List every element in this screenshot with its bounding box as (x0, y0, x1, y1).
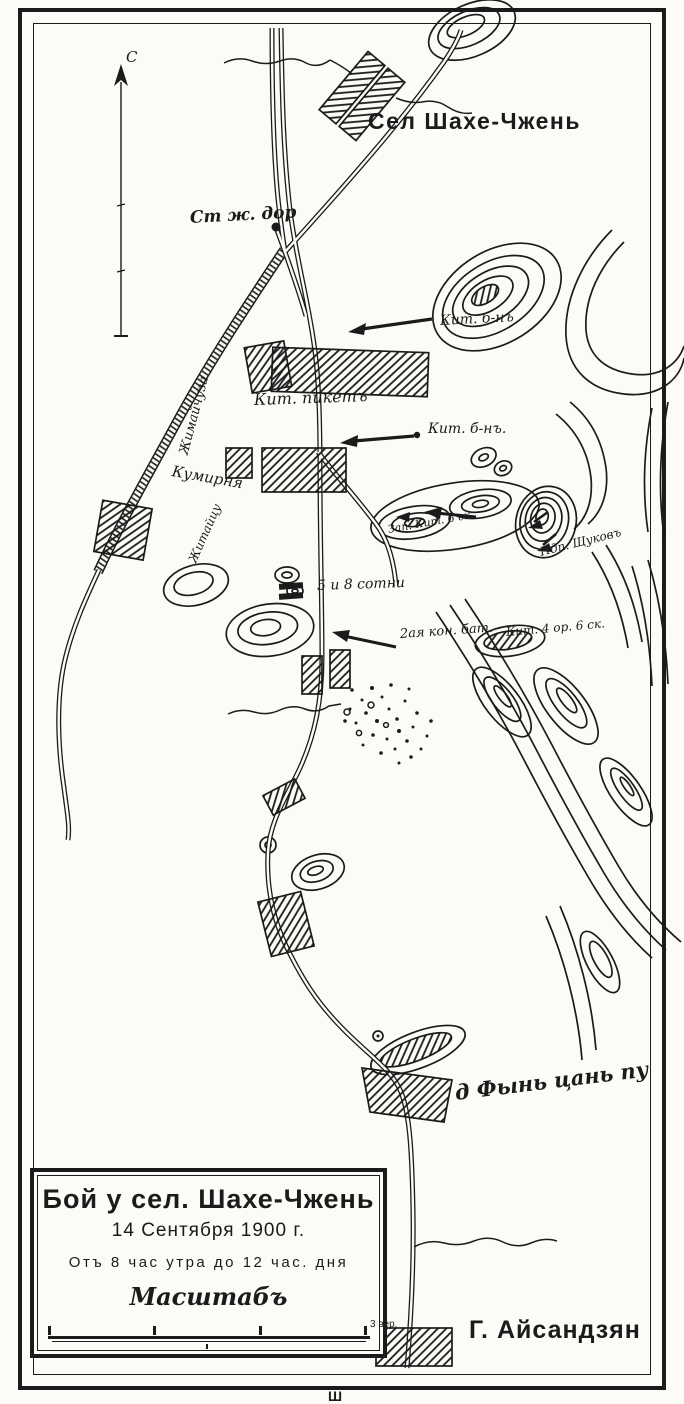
speckled-grove (343, 683, 433, 764)
page-footer-artifact: Ш (328, 1389, 342, 1403)
streams (224, 59, 557, 1247)
village-shahe-label: Сел Шахе-Чжень (368, 110, 581, 133)
sotni-label: 5 и 8 сотни (317, 576, 405, 593)
kit-bn-top-label: Кит. б-нъ (440, 310, 514, 328)
map: { "labels": { "north": "С", "station": "… (0, 0, 684, 1400)
map-date: 14 Сентября 1900 г. (34, 1220, 383, 1242)
railway-station-dot (272, 223, 281, 232)
aisandzyan-label: Г. Айсандзян (466, 1318, 644, 1343)
north-arrow (114, 64, 128, 336)
map-time-range: Отъ 8 час утра до 12 час. дня (34, 1254, 383, 1271)
title-box: Бой у сел. Шахе-Чжень 14 Сентября 1900 г… (30, 1168, 387, 1358)
scale-unit-label: 3 вер. (370, 1320, 397, 1330)
roads (59, 28, 461, 1368)
kit-picket-label: Кит. пикетъ (254, 388, 368, 408)
map-title: Бой у сел. Шахе-Чжень (34, 1184, 383, 1215)
north-label: С (126, 50, 137, 65)
scale-label: Масштабъ (34, 1282, 383, 1311)
kit-bn-mid-label: Кит. б-нъ. (428, 422, 506, 436)
